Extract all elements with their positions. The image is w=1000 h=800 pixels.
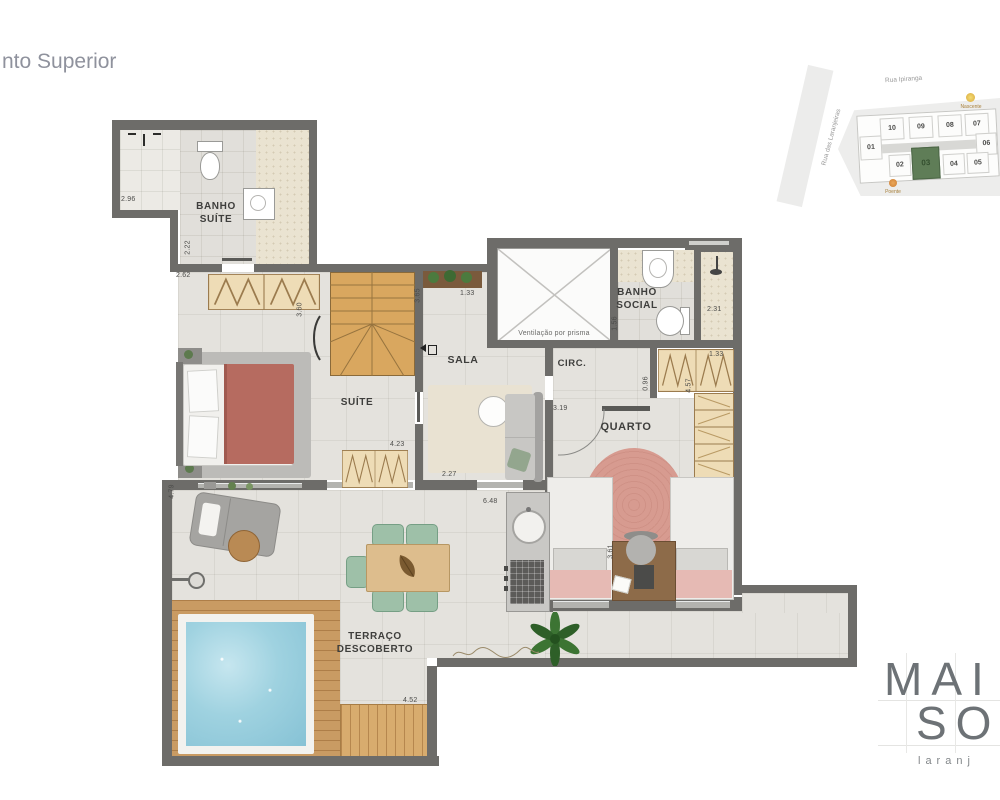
wall-segment (415, 480, 477, 490)
wall-segment (848, 585, 857, 667)
wall-segment (427, 666, 437, 766)
bed-suite-pillow (187, 369, 219, 413)
floor-plan-page: nto Superior Rua Ipiranga Rua das Laranj… (0, 0, 1000, 800)
wall-segment (162, 480, 172, 766)
measurement: 2.22 (185, 240, 192, 254)
label-banho-suite: BANHO SUÍTE (180, 200, 252, 226)
label-suite: SUÍTE (335, 396, 379, 409)
bed-suite-headboard (176, 362, 183, 466)
shower-head-icon (716, 256, 718, 270)
planter-plant (428, 272, 439, 283)
wall-segment (112, 120, 120, 218)
site-map-unit-03-highlighted: 03 (911, 146, 941, 179)
toilet-suite (197, 141, 223, 152)
floor-circ (553, 348, 650, 398)
shower-head-icon (710, 269, 722, 275)
bed-quarto-left-pillow (553, 548, 607, 572)
stair-railing (310, 314, 324, 362)
site-map-block-left (777, 65, 834, 207)
site-map-unit-08: 08 (937, 114, 962, 137)
toilet-suite-bowl (200, 152, 220, 180)
wall-segment (733, 238, 742, 595)
wall-segment (607, 340, 740, 348)
measurement: 4.57 (686, 378, 693, 392)
wall-segment (733, 585, 854, 593)
sofa-seam (505, 437, 535, 438)
bed-quarto-right-pillow (676, 548, 728, 572)
grill (510, 560, 544, 604)
measurement: 2.31 (707, 306, 721, 313)
wall-segment (309, 120, 317, 272)
measurement: 1.56 (612, 316, 619, 330)
outdoor-sink-faucet (526, 507, 531, 512)
sun-west-icon (889, 179, 897, 187)
pool-water (186, 622, 306, 746)
site-map-building: 10 09 08 07 01 06 02 03 04 05 (856, 108, 999, 183)
site-map-unit-10: 10 (879, 117, 904, 140)
measurement: 3.61 (608, 544, 615, 558)
measurement: 2.27 (442, 471, 456, 478)
wardrobe-quarto-shelves (694, 393, 734, 479)
staircase (330, 272, 415, 376)
site-map-unit-02: 02 (888, 154, 911, 177)
sun-east-icon (966, 93, 975, 102)
wall-segment (112, 120, 317, 130)
page-title: nto Superior (2, 50, 116, 74)
logo-text-line2: SO (916, 700, 1000, 746)
sliding-door-sala (477, 482, 523, 488)
street-label-top: Rua Ipiranga (885, 75, 923, 85)
desk-chair (626, 535, 656, 565)
label-circ: CIRC. (550, 358, 594, 370)
wall-segment (162, 756, 439, 766)
wall-segment (694, 248, 701, 348)
sun-east-label: Nascente (954, 104, 988, 110)
measurement: 4.23 (390, 441, 404, 448)
bed-quarto-left-blanket (547, 570, 611, 598)
grill-knob (504, 576, 508, 581)
grill-knob (504, 566, 508, 571)
outdoor-shower-icon (188, 572, 205, 589)
measurement: 0.96 (643, 376, 650, 390)
measurement: 6.48 (483, 498, 497, 505)
wall-segment (112, 210, 178, 218)
site-map-unit-01: 01 (859, 135, 882, 160)
shower-valve-icon (153, 133, 161, 135)
measurement: 3.60 (297, 302, 304, 316)
window-quarto-right (676, 601, 730, 608)
wall-segment (415, 424, 423, 480)
floor-terraco-right (545, 611, 848, 658)
vanity-suite-basin (250, 195, 266, 211)
measurement: 1.33 (709, 351, 723, 358)
logo-text-line1: MAI (884, 656, 993, 702)
site-map: Rua Ipiranga Rua das Laranjeiras 10 09 0… (790, 60, 1000, 210)
outdoor-sink (512, 510, 546, 544)
shower-valve-icon (143, 134, 145, 146)
label-quarto: QUARTO (596, 420, 656, 434)
niche-shelf (689, 241, 729, 245)
tv-icon (420, 344, 426, 352)
grill-knob (504, 586, 508, 591)
bed-suite-pillow (187, 415, 219, 459)
logo-subtitle: laranj (918, 755, 975, 767)
wall-segment (178, 264, 222, 272)
measurement: 2.62 (176, 272, 190, 279)
shower-valve-icon (128, 133, 136, 135)
label-terraco: TERRAÇO DESCOBERTO (325, 630, 425, 656)
planter-plant (461, 272, 472, 283)
measurement: 4.79 (169, 484, 176, 498)
site-map-unit-09: 09 (908, 116, 933, 139)
wall-segment (650, 348, 657, 398)
wall-segment (487, 238, 497, 348)
wardrobe-suite-bottom (342, 450, 408, 488)
dining-chair (372, 589, 404, 612)
planter-plant (444, 270, 456, 282)
shelf-plant (228, 482, 236, 490)
sink-basin (649, 258, 667, 278)
measurement: 3.65 (415, 288, 422, 302)
wall-segment (254, 264, 309, 272)
door-leaf-suite (417, 392, 420, 422)
wall-segment (487, 340, 618, 348)
label-banho-social: BANHO SOCIAL (606, 286, 668, 312)
sun-west-label: Poente (876, 189, 910, 195)
window-quarto-left (553, 601, 609, 608)
desk-laptop (634, 565, 654, 589)
label-ventilacao: Ventilação por prisma (499, 329, 609, 338)
bed-suite-duvet (224, 364, 294, 464)
label-sala: SALA (441, 354, 485, 368)
ventilation-shaft (497, 248, 612, 342)
door-leaf-banho-suite (222, 258, 252, 261)
measurement: 1.33 (460, 290, 474, 297)
bed-quarto-right-blanket (670, 570, 732, 598)
wall-segment (170, 210, 178, 272)
shelf-plant (246, 483, 253, 490)
measurement: 3.19 (553, 405, 567, 412)
site-map-unit-05: 05 (966, 152, 989, 174)
measurement: 2.96 (121, 196, 135, 203)
tv-icon (428, 345, 437, 355)
dining-chair (406, 589, 438, 612)
round-side-table (228, 530, 260, 562)
door-leaf-quarto (602, 406, 650, 411)
site-map-unit-04: 04 (942, 153, 965, 175)
terrace-bench (340, 704, 429, 758)
nightstand-plant (184, 350, 193, 359)
floor-terraco-bulge (742, 593, 848, 613)
wall-segment (415, 264, 423, 392)
artist-signature (450, 644, 542, 662)
brand-logo: MAI SO laranj (878, 648, 1000, 798)
measurement: 4.52 (403, 697, 417, 704)
